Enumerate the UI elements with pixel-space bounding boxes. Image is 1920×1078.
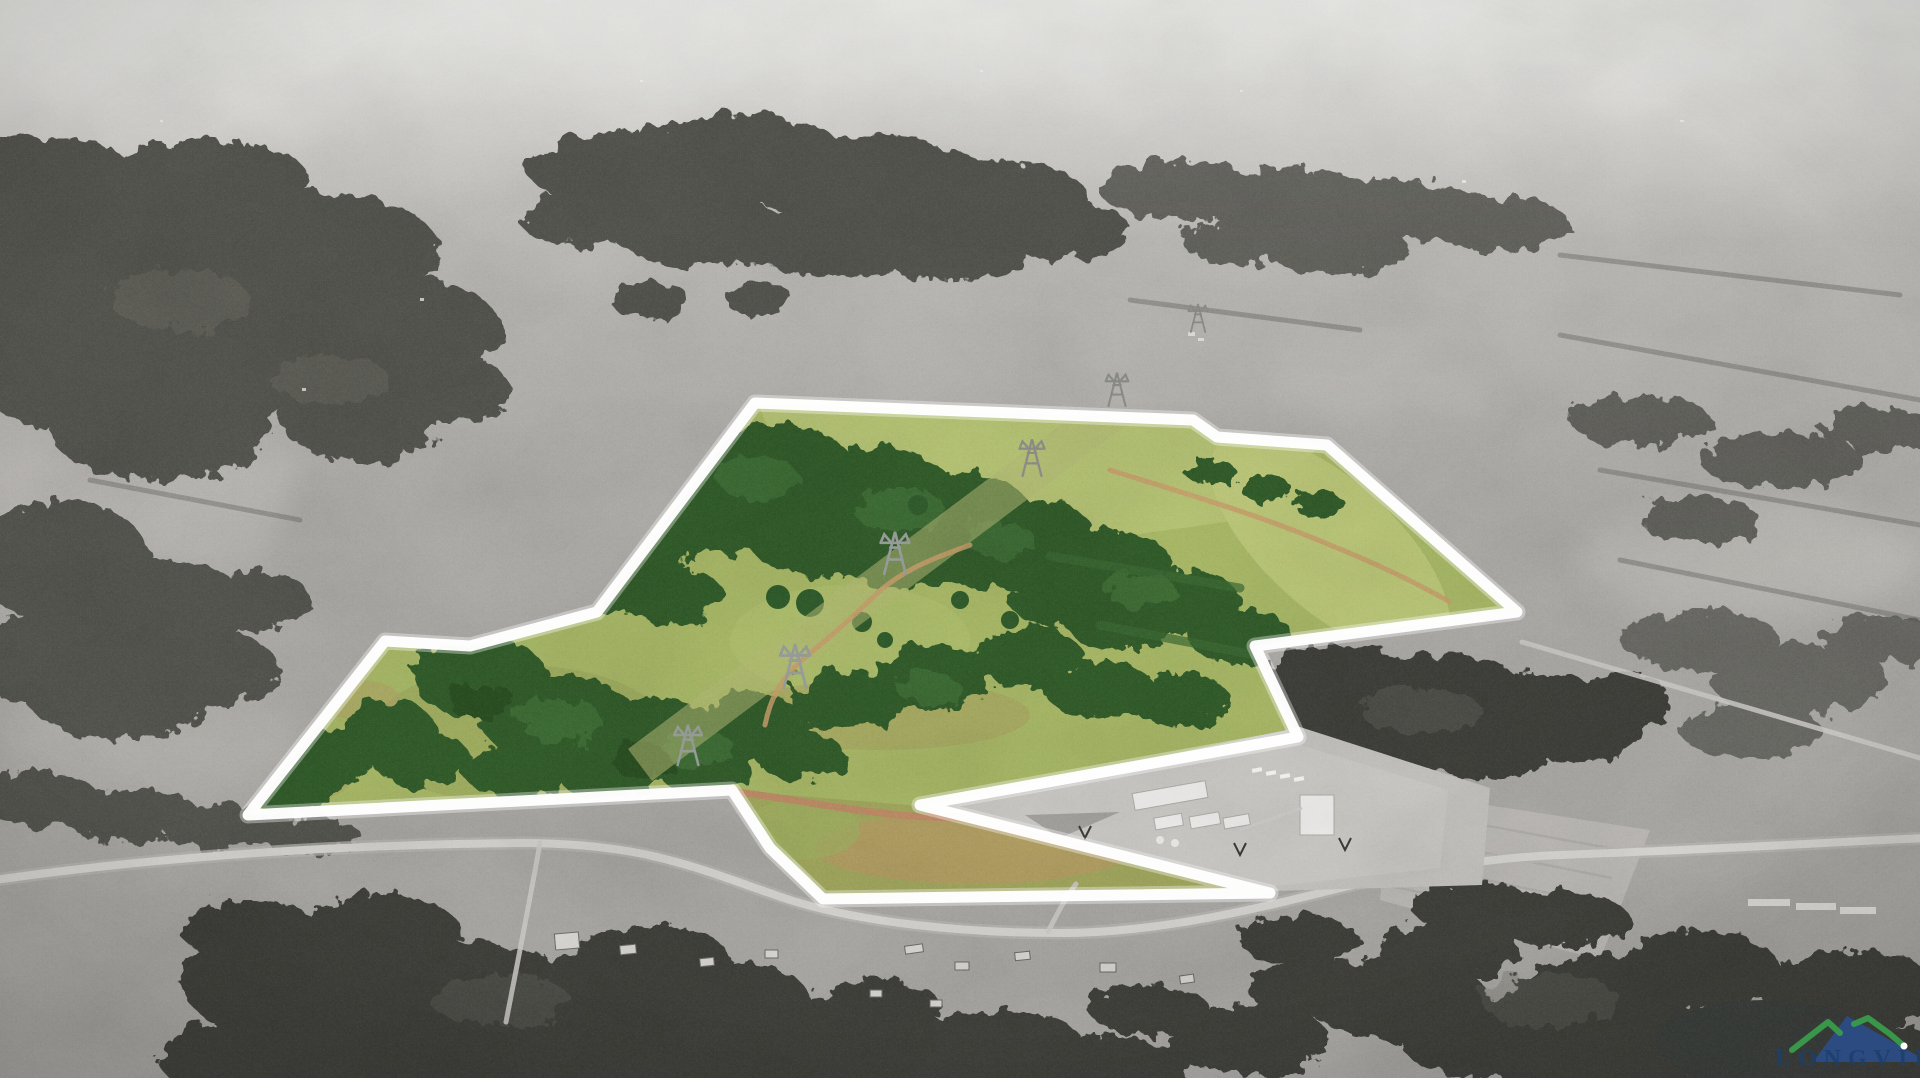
watermark-text: LONGVIEW	[1775, 1046, 1920, 1072]
aerial-photo: LONGVIEW	[0, 0, 1920, 1078]
aerial-photo-canvas: LONGVIEW	[0, 0, 1920, 1078]
vignette	[0, 0, 1920, 1078]
